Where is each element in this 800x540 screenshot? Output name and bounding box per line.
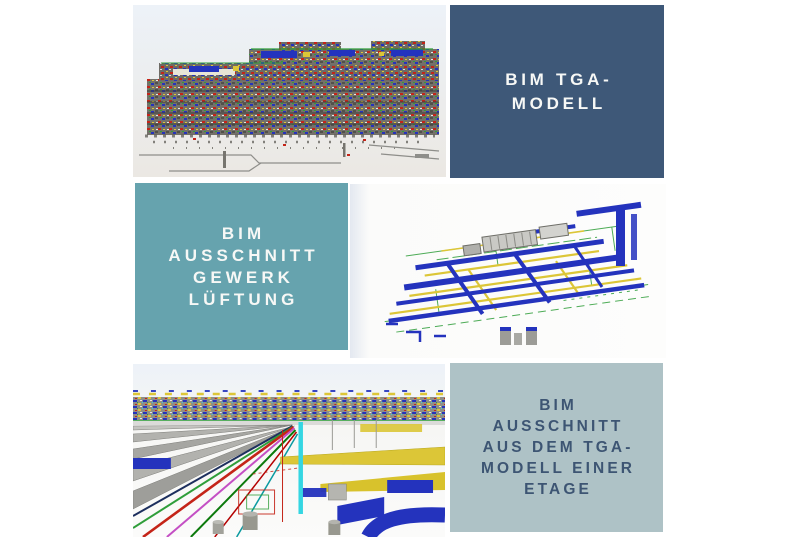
pipe-post [223, 151, 226, 168]
equipment-box [328, 484, 346, 500]
tga-model-overview-render [133, 5, 446, 177]
label-line: AUSSCHNITT [164, 245, 318, 267]
label-line: BIM TGA- [501, 68, 612, 92]
label-line: MODELL [508, 92, 606, 116]
pipe-stub [415, 154, 429, 158]
bim-tga-model-overview-image [133, 5, 446, 177]
bim-tga-modell-label-box: BIM TGA- MODELL [450, 5, 664, 178]
label-line: MODELL EINER [478, 458, 635, 479]
etage-model-perspective-render [133, 364, 445, 537]
collage-canvas: BIM TGA- MODELL BIM AUSSCHNITT GEWERK LÜ… [0, 0, 800, 540]
lueftung-gewerk-model-render [350, 184, 666, 358]
label-line: BIM [536, 395, 577, 416]
cyan-riser-pipe [298, 422, 302, 514]
gewerk-lueftung-label-box: BIM AUSSCHNITT GEWERK LÜFTUNG [135, 183, 348, 350]
label-line: AUSSCHNITT [490, 416, 624, 437]
label-line: AUS DEM TGA- [480, 437, 634, 458]
pipe-post [343, 143, 346, 157]
label-line: LÜFTUNG [185, 289, 299, 311]
label-line: BIM [218, 223, 265, 245]
bim-lueftung-model-image [350, 184, 666, 358]
label-line: GEWERK [189, 267, 294, 289]
bim-etage-model-image [133, 364, 445, 537]
label-line: ETAGE [521, 479, 592, 500]
etage-label-box: BIM AUSSCHNITT AUS DEM TGA- MODELL EINER… [450, 363, 663, 532]
